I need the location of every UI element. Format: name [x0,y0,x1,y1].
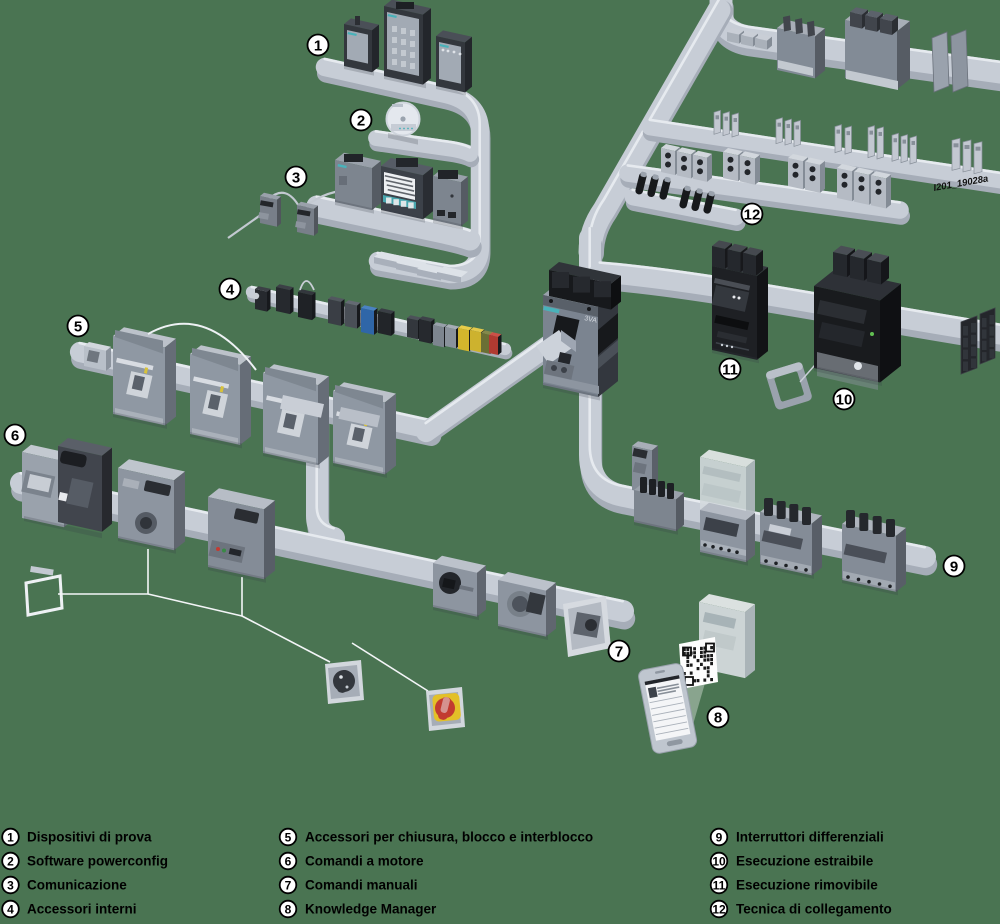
svg-text:Comandi manuali: Comandi manuali [305,878,418,893]
svg-text:Comandi a motore: Comandi a motore [305,854,424,869]
svg-text:2: 2 [7,854,14,868]
svg-text:4: 4 [226,281,235,298]
svg-text:4: 4 [7,902,14,916]
svg-text:2: 2 [357,112,365,129]
svg-text:5: 5 [74,318,82,335]
svg-text:Tecnica di collegamento: Tecnica di collegamento [736,902,892,917]
svg-text:8: 8 [714,709,722,726]
svg-text:1: 1 [7,830,14,844]
svg-text:6: 6 [11,427,19,444]
svg-text:Interruttori differenziali: Interruttori differenziali [736,830,884,845]
svg-text:Esecuzione estraibile: Esecuzione estraibile [736,854,874,869]
svg-text:10: 10 [712,854,726,868]
svg-text:12: 12 [712,902,726,916]
svg-text:11: 11 [713,878,726,892]
svg-text:Esecuzione rimovibile: Esecuzione rimovibile [736,878,878,893]
svg-text:6: 6 [285,854,292,868]
svg-text:7: 7 [285,878,292,892]
svg-text:Comunicazione: Comunicazione [27,878,127,893]
svg-text:Software powerconfig: Software powerconfig [27,854,168,869]
svg-text:3: 3 [292,169,300,186]
svg-text:11: 11 [722,361,738,378]
svg-text:Accessori interni: Accessori interni [27,902,137,917]
svg-text:Dispositivi di prova: Dispositivi di prova [27,830,152,845]
svg-text:12: 12 [744,206,761,223]
svg-text:7: 7 [615,643,623,660]
svg-text:9: 9 [950,558,958,575]
svg-text:Accessori per chiusura, blocco: Accessori per chiusura, blocco e interbl… [305,830,593,845]
svg-text:3: 3 [7,878,14,892]
svg-text:5: 5 [285,830,292,844]
svg-text:Knowledge Manager: Knowledge Manager [305,902,437,917]
svg-text:8: 8 [285,902,292,916]
svg-text:10: 10 [836,391,853,408]
svg-text:1: 1 [314,37,322,54]
svg-text:9: 9 [716,830,723,844]
